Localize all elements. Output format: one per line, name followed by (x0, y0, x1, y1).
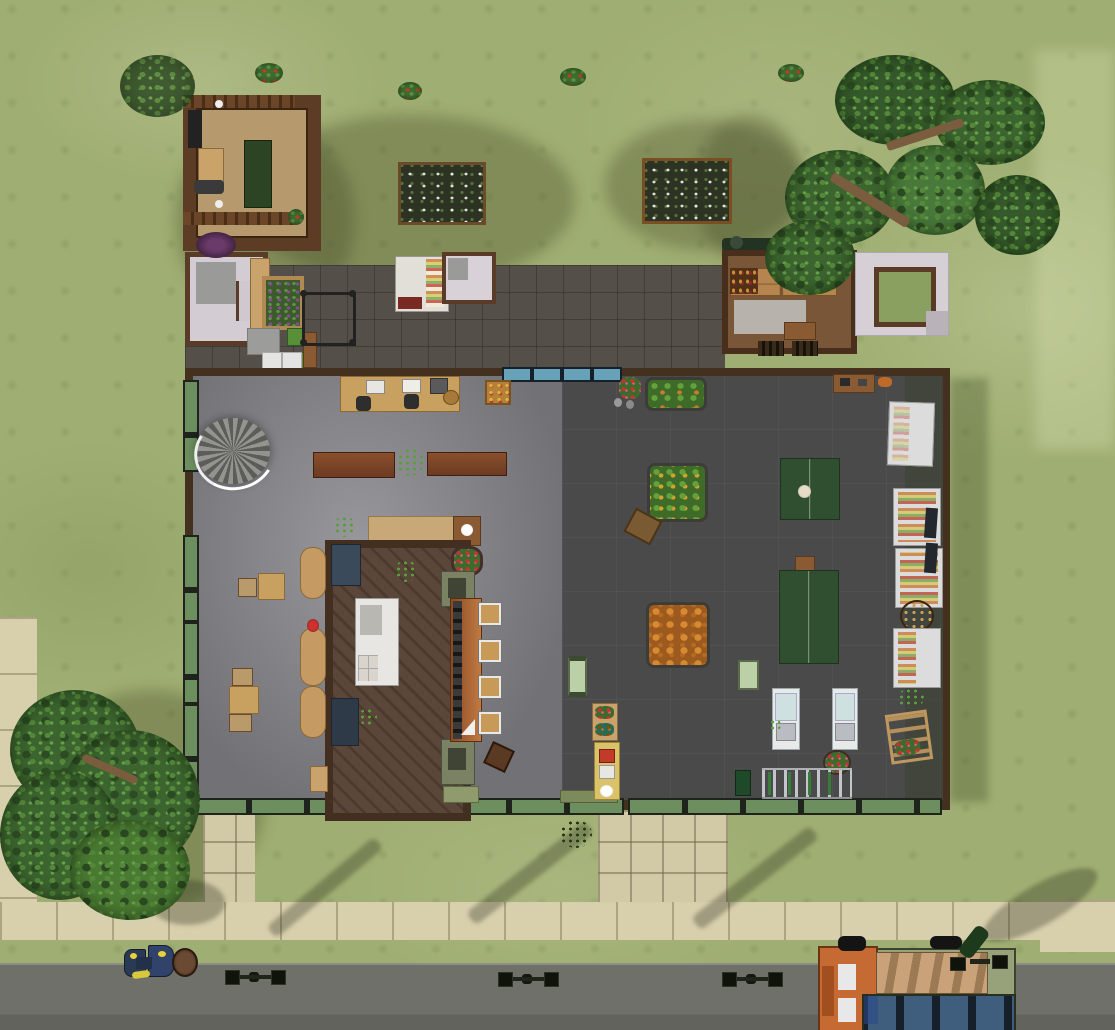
storefront-south-windows (628, 798, 942, 815)
wooden-desk[interactable] (784, 322, 816, 340)
checkout-register-2[interactable] (832, 688, 858, 750)
bottle-shelf[interactable] (730, 268, 758, 294)
decor-item[interactable] (878, 377, 892, 387)
display-panel (924, 508, 938, 539)
small-stool[interactable] (795, 556, 815, 571)
grocery-shelf-unit[interactable] (887, 401, 935, 467)
stove-hood (360, 605, 382, 635)
street-tree-southwest[interactable] (0, 670, 210, 920)
dining-chair[interactable] (232, 668, 253, 686)
kitchen-plant[interactable] (359, 708, 377, 726)
pergola-lamp (215, 200, 223, 208)
red-flower-bush[interactable] (255, 63, 283, 83)
restroom-floor (196, 262, 236, 304)
flower-planter-box[interactable] (262, 276, 304, 330)
entry-path-center (598, 810, 728, 904)
door-mat (443, 786, 479, 803)
wall-east (943, 368, 950, 810)
fruit-crate[interactable] (485, 380, 511, 405)
wooden-pergola[interactable] (183, 95, 321, 251)
store-trash-can[interactable] (735, 770, 751, 796)
storage-shed[interactable] (442, 252, 496, 304)
flower-ladder-display[interactable] (885, 709, 934, 764)
shopping-cart-rack[interactable] (762, 768, 852, 799)
potted-palm[interactable] (334, 516, 355, 537)
easel[interactable] (188, 110, 202, 148)
bowl (461, 524, 473, 536)
market-table-north[interactable] (780, 458, 840, 520)
sparse-tree[interactable] (120, 55, 195, 117)
lot-scene (0, 0, 1115, 1030)
food-stand-front (398, 297, 422, 309)
parked-motorcycle[interactable] (122, 943, 174, 983)
red-flower-bush[interactable] (288, 209, 304, 225)
stove-burners[interactable] (358, 655, 378, 681)
building-shadow-east (950, 378, 988, 802)
street-lamp-1[interactable] (225, 964, 285, 988)
juice-bar-counter[interactable] (450, 598, 482, 742)
bar-stool[interactable] (479, 603, 501, 625)
pergola-roof-slats (183, 95, 295, 108)
waste-basket[interactable] (443, 390, 459, 405)
scale-kiosk[interactable] (568, 656, 587, 697)
napkin-holder (461, 719, 475, 735)
dining-chair[interactable] (229, 714, 252, 732)
corner-cabinet[interactable] (441, 739, 475, 785)
pergola-table[interactable] (198, 148, 224, 184)
lounge-seat[interactable] (300, 628, 326, 686)
climbing-frame[interactable] (302, 292, 356, 346)
scale-kiosk[interactable] (738, 660, 759, 690)
garden-bench[interactable] (244, 140, 272, 208)
lawn-shrub[interactable] (560, 820, 592, 848)
shed-floor (448, 258, 468, 280)
oak-tree-northeast[interactable] (765, 55, 1045, 300)
bar-taps[interactable] (453, 601, 462, 739)
street-lamp-3[interactable] (722, 966, 782, 990)
potted-palm[interactable] (397, 448, 424, 476)
computer-monitor[interactable] (402, 379, 421, 393)
produce-bin-pumpkins[interactable] (646, 602, 710, 668)
display-panel (924, 543, 938, 574)
shrub-pot[interactable] (898, 688, 924, 708)
flower-shelf[interactable] (592, 703, 618, 741)
floor-grate (792, 341, 818, 356)
produce-bin-greens[interactable] (645, 377, 707, 411)
floor-grate (758, 341, 784, 356)
produce-bin-squash[interactable] (647, 463, 708, 522)
street-lamp-4[interactable] (930, 925, 1010, 975)
telescope[interactable] (194, 180, 224, 194)
dining-table[interactable] (258, 573, 285, 600)
red-flower-bush[interactable] (560, 68, 586, 86)
office-chair[interactable] (356, 396, 371, 411)
side-stool[interactable] (310, 766, 328, 792)
flower-pot[interactable] (307, 619, 319, 632)
espresso-stand[interactable] (594, 742, 620, 800)
melon (798, 485, 811, 498)
grocery-shelf-unit[interactable] (893, 628, 941, 688)
kitchen-fridge[interactable] (331, 544, 361, 586)
dining-table[interactable] (229, 686, 259, 714)
bar-stool[interactable] (479, 640, 501, 662)
garden-plot-flowers[interactable] (398, 162, 486, 225)
clay-pot (626, 400, 634, 409)
street-lamp-2[interactable] (498, 966, 558, 990)
window-north-glass-doors[interactable] (502, 367, 622, 382)
pergola-roof-slats (183, 212, 295, 225)
curbside-trash-can[interactable] (172, 948, 198, 977)
food-display-stand[interactable] (395, 256, 449, 312)
checkout-register-1[interactable] (772, 688, 800, 750)
lounge-seat[interactable] (300, 686, 326, 738)
red-flower-bush[interactable] (398, 82, 422, 100)
bar-stool[interactable] (479, 712, 501, 734)
store-floor-east (562, 375, 943, 803)
restroom-shade (926, 311, 948, 335)
grass-light-strip (1035, 50, 1115, 450)
goods-table[interactable] (833, 374, 875, 393)
display-bench[interactable] (313, 452, 395, 478)
computer-monitor[interactable] (366, 380, 385, 394)
bar-stool[interactable] (479, 676, 501, 698)
flower-pot-display[interactable] (619, 377, 641, 399)
purple-bush[interactable] (196, 232, 236, 258)
patio-mat (247, 328, 280, 355)
garden-plot-vegetables[interactable] (642, 158, 732, 224)
kitchen-plant[interactable] (395, 560, 417, 582)
window-south (192, 798, 334, 815)
market-table-south[interactable] (779, 570, 839, 664)
kitchen-stove-counter[interactable] (355, 598, 399, 686)
display-bench[interactable] (427, 452, 507, 476)
window-west (183, 535, 199, 622)
kitchen-cabinet[interactable] (331, 698, 359, 746)
lounge-seat[interactable] (300, 547, 326, 599)
dining-chair[interactable] (238, 578, 257, 597)
office-chair[interactable] (404, 394, 419, 409)
clay-pot (614, 398, 622, 407)
pergola-lamp (215, 100, 223, 108)
